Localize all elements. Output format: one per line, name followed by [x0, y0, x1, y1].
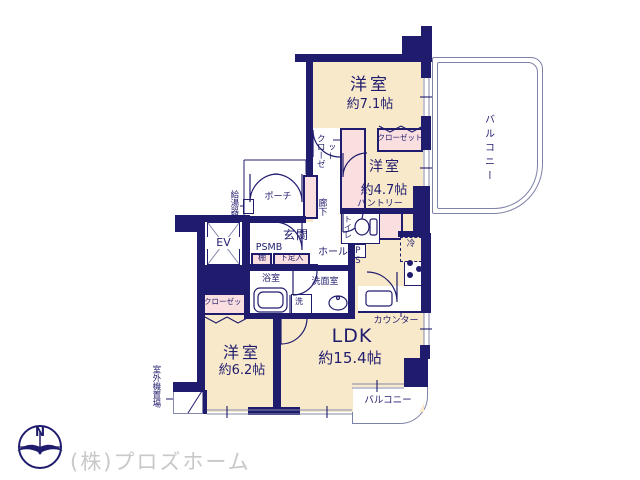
water-heater-label: 給湯器	[229, 187, 238, 219]
wall-right-kitchen	[421, 233, 431, 313]
closet-mid-label: クローゼット	[315, 133, 335, 169]
wall-ev-right	[242, 215, 250, 272]
shelf-label: 棚	[252, 254, 272, 263]
compass-north-icon: N	[17, 425, 63, 468]
wall-ev-spur	[175, 215, 197, 232]
room-ldk-size: 約15.4帖	[312, 350, 388, 367]
wall-right-71b	[421, 116, 431, 150]
compass-north-label: N	[35, 425, 45, 439]
room-47-size: 約4.7帖	[352, 184, 416, 199]
window-ldk-right	[424, 313, 429, 345]
wall-corner-b	[421, 26, 432, 62]
floorplan-canvas: N 洋室 約7.1帖 バルコニー クローゼット クローゼット 洋室 約4.7帖 …	[0, 0, 640, 480]
room-47-name: 洋室	[356, 160, 414, 176]
washroom-label: 洗面室	[300, 277, 350, 287]
closet-62-label: クローゼット	[204, 298, 248, 306]
room-71-name: 洋室	[332, 76, 408, 95]
wall-bath-left	[244, 271, 250, 315]
elevator-label: EV	[207, 237, 240, 249]
wall-step-block	[173, 382, 205, 392]
wall-porch-entrance	[246, 216, 306, 223]
room-62-name: 洋室	[210, 344, 274, 362]
wall-right-ldk	[420, 345, 430, 359]
counter-label: カウンター	[370, 316, 422, 326]
balcony-bottom-label: バルコニー	[358, 396, 418, 407]
hall-label: ホール	[313, 247, 353, 258]
balcony-right-label: バルコニー	[482, 103, 493, 195]
laundry-label: 洗	[293, 298, 305, 307]
kitchen-counter-floor	[358, 286, 426, 312]
closet-top-label: クローゼット	[377, 134, 423, 142]
window-71-right	[424, 78, 429, 116]
room-ldk-name: LDK	[324, 326, 380, 347]
water-heater-box	[243, 199, 254, 214]
wall-left-71	[306, 54, 313, 175]
wall-ev-bottom-block	[197, 265, 250, 295]
room-71-size: 約7.1帖	[334, 98, 406, 113]
refrigerator-label: 冷	[400, 240, 422, 250]
outdoor-unit-label: 室外機置場	[151, 358, 160, 414]
wall-entrance-bottom	[250, 264, 318, 271]
pantry-label: パントリー	[351, 199, 409, 209]
porch-label: ポーチ	[258, 192, 298, 202]
outdoor-unit-box	[173, 390, 203, 414]
wall-bath-bottom	[244, 313, 355, 319]
bathroom-label: 浴室	[252, 274, 290, 284]
entrance-label: 玄関	[278, 229, 314, 242]
wall-corner-balcony	[404, 358, 428, 387]
company-watermark: (株)プロズホーム	[70, 446, 251, 476]
shoe-cabinet-label: 下足入	[274, 254, 309, 263]
hallway-label: 廊下	[316, 194, 325, 220]
wall-62-bottom	[248, 407, 300, 415]
pipe-space-label: PS	[353, 245, 362, 267]
room-62-size: 約6.2帖	[205, 364, 279, 379]
wall-right-71a	[421, 62, 431, 78]
wall-fridge-top	[398, 231, 430, 237]
window-47-right	[424, 150, 429, 186]
toilet-label: トイレ	[343, 213, 351, 241]
wall-62-left-lower	[203, 390, 207, 414]
